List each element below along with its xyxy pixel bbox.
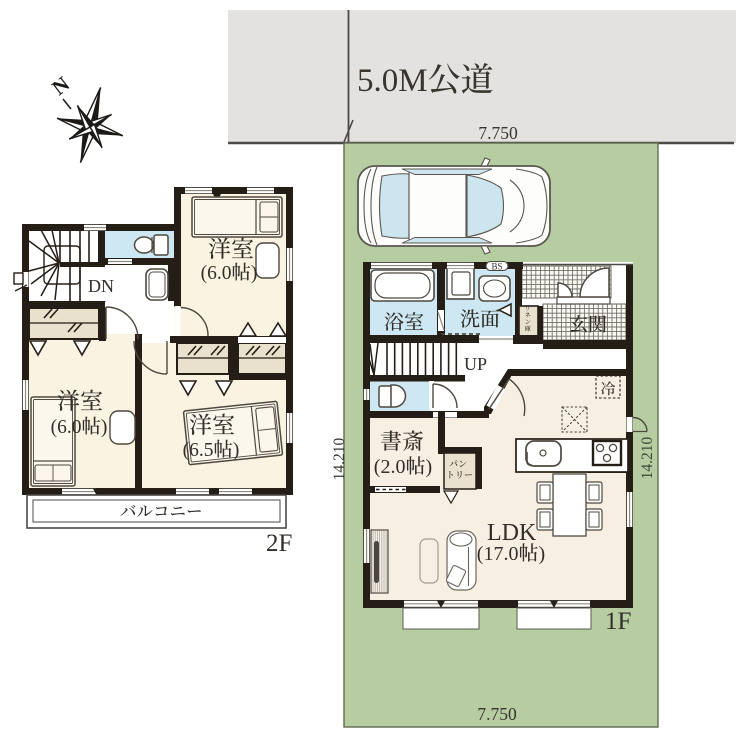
svg-text:): ) bbox=[101, 417, 108, 438]
svg-text:14.210: 14.210 bbox=[331, 437, 348, 480]
svg-text:1F: 1F bbox=[605, 608, 631, 635]
svg-text:UP: UP bbox=[464, 354, 487, 374]
svg-text:17.0: 17.0 bbox=[484, 543, 519, 565]
svg-text:7.750: 7.750 bbox=[477, 704, 517, 724]
svg-text:DN: DN bbox=[88, 276, 114, 296]
svg-text:7.750: 7.750 bbox=[478, 123, 518, 143]
svg-text:14.210: 14.210 bbox=[639, 436, 656, 479]
svg-text:): ) bbox=[251, 263, 258, 284]
svg-text:): ) bbox=[233, 440, 240, 461]
svg-text:): ) bbox=[426, 456, 433, 478]
svg-text:2.0: 2.0 bbox=[381, 456, 406, 478]
svg-text:6.0: 6.0 bbox=[207, 263, 231, 284]
svg-text:6.0: 6.0 bbox=[57, 417, 81, 438]
svg-text:): ) bbox=[539, 543, 546, 565]
svg-text:BS: BS bbox=[491, 262, 502, 272]
svg-text:6.5: 6.5 bbox=[189, 440, 213, 461]
svg-text:5.0M: 5.0M bbox=[357, 63, 428, 99]
svg-text:N: N bbox=[47, 72, 74, 100]
svg-text:2F: 2F bbox=[266, 530, 292, 557]
